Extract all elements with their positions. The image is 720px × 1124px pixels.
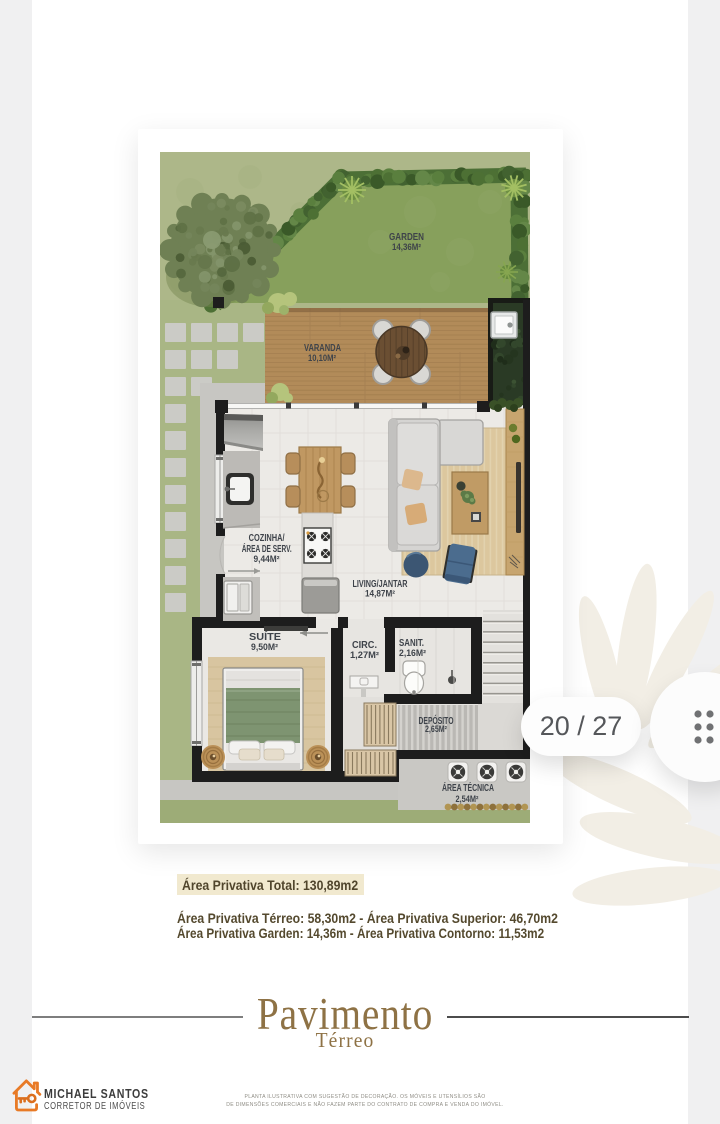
svg-text:ÁREA TÉCNICA: ÁREA TÉCNICA — [442, 781, 494, 794]
svg-text:14,87M²: 14,87M² — [365, 589, 395, 599]
svg-text:14,36M²: 14,36M² — [392, 242, 421, 252]
svg-text:1,27M²: 1,27M² — [350, 650, 379, 660]
svg-text:9,44M²: 9,44M² — [254, 554, 280, 564]
svg-text:2,54M²: 2,54M² — [456, 794, 479, 804]
svg-text:2,16M²: 2,16M² — [399, 648, 426, 658]
svg-text:COZINHA/: COZINHA/ — [249, 533, 285, 544]
svg-text:9,50M²: 9,50M² — [251, 642, 278, 652]
svg-text:2,65M²: 2,65M² — [425, 724, 447, 734]
svg-text:10,10M²: 10,10M² — [308, 353, 336, 363]
